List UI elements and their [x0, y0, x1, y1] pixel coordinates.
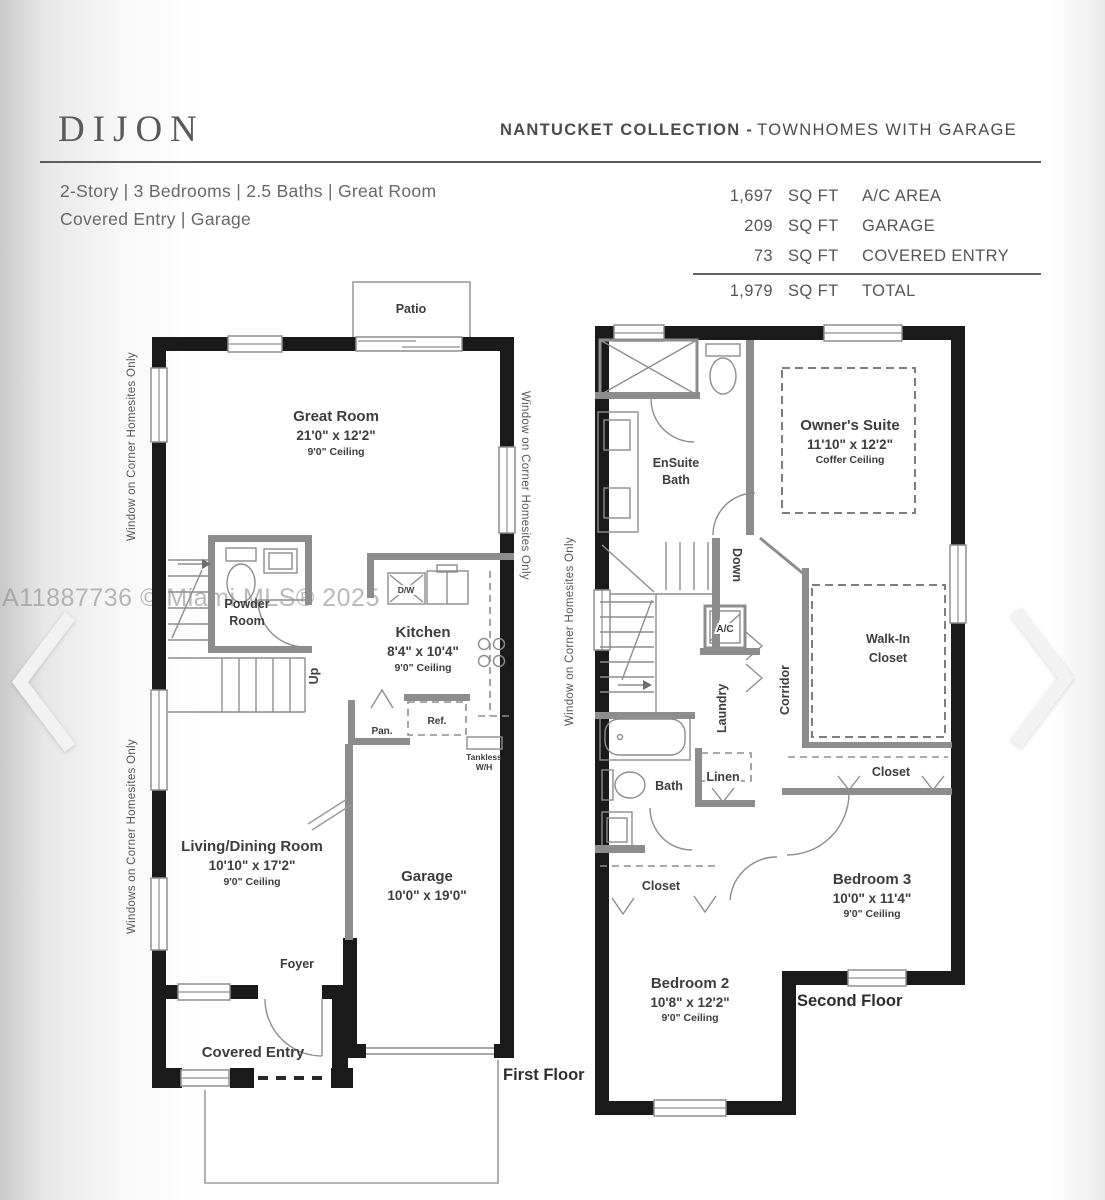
bedroom3-label: Bedroom 3: [833, 871, 911, 888]
great-room-dims: 21'0" x 12'2": [296, 428, 375, 443]
powder-room: Powder Room: [224, 548, 305, 647]
note-second-left: Window on Corner Homesites Only: [564, 523, 576, 741]
living-dining-ceiling: 9'0" Ceiling: [223, 876, 280, 888]
powder-room-label-1: Powder: [224, 597, 269, 611]
bedroom3-ceiling: 9'0" Ceiling: [843, 908, 900, 920]
foyer-covered-entry: Foyer Covered Entry: [202, 957, 322, 1061]
walk-in-closet: Walk-In Closet: [812, 585, 945, 737]
powder-room-label-2: Room: [229, 614, 264, 628]
bedroom-2: Bedroom 2 10'8" x 12'2" 9'0" Ceiling: [650, 975, 729, 1024]
tankless-wh-label-2: W/H: [476, 762, 493, 772]
hall-closet-label: Closet: [872, 765, 911, 779]
second-floor-plan: EnSuite Bath Owner's Suite 11'10" x 12'2…: [594, 325, 966, 1116]
down-label: Down: [730, 548, 744, 582]
bedroom2-ceiling: 9'0" Ceiling: [661, 1012, 718, 1024]
previous-photo-button[interactable]: [6, 610, 86, 760]
next-photo-button[interactable]: [1000, 606, 1080, 756]
bedroom2-label: Bedroom 2: [651, 975, 729, 992]
bedroom-3: Bedroom 3 10'0" x 11'4" 9'0" Ceiling: [833, 871, 912, 920]
up-label: Up: [307, 667, 321, 684]
patio: Patio: [353, 282, 470, 339]
note-first-right: Window on Corner Homesites Only: [519, 378, 531, 593]
walk-in-closet-label-2: Closet: [869, 651, 908, 665]
tankless-wh-label-1: Tankless: [466, 752, 502, 762]
owners-suite: Owner's Suite 11'10" x 12'2" Coffer Ceil…: [782, 368, 915, 513]
ac-closet: A/C: [705, 606, 745, 648]
staircase-up: Up: [168, 559, 321, 712]
laundry-label: Laundry: [715, 684, 729, 733]
first-floor-caption: First Floor: [503, 1066, 585, 1084]
covered-entry-label: Covered Entry: [202, 1044, 305, 1061]
note-first-left-bottom: Windows on Corner Homesites Only: [126, 724, 138, 949]
kitchen-label: Kitchen: [395, 624, 450, 641]
pantry-label: Pan.: [371, 726, 392, 737]
patio-label: Patio: [396, 302, 427, 316]
linen-label: Linen: [706, 770, 739, 784]
kitchen-ceiling: 9'0" Ceiling: [394, 662, 451, 674]
note-first-left-top: Window on Corner Homesites Only: [126, 333, 138, 561]
ensuite-bath: EnSuite Bath: [598, 340, 755, 535]
ensuite-bath-label-2: Bath: [662, 473, 690, 487]
great-room-label: Great Room: [293, 408, 379, 425]
living-dining-dims: 10'10" x 17'2": [209, 858, 296, 873]
ac-label: A/C: [716, 624, 733, 635]
living-dining-room: Living/Dining Room 10'10" x 17'2" 9'0" C…: [181, 799, 351, 888]
hall-closet: Closet: [788, 757, 948, 790]
garage: Garage 10'0" x 19'0": [387, 868, 466, 903]
bedroom2-dims: 10'8" x 12'2": [650, 995, 729, 1010]
living-dining-label: Living/Dining Room: [181, 838, 323, 855]
owners-suite-label: Owner's Suite: [800, 417, 899, 434]
floor-plan-canvas: Patio: [0, 0, 1105, 1200]
dishwasher-label: D/W: [398, 585, 416, 595]
owners-suite-ceiling: Coffer Ceiling: [816, 454, 885, 466]
kitchen-dims: 8'4" x 10'4": [387, 644, 459, 659]
chevron-left-icon: [6, 610, 86, 760]
corridor-label: Corridor: [778, 665, 792, 715]
walk-in-closet-label-1: Walk-In: [866, 632, 910, 646]
garage-label: Garage: [401, 868, 453, 885]
bedroom2-closet: Closet: [600, 866, 718, 914]
refrigerator-label: Ref.: [428, 716, 447, 727]
bedroom2-closet-label: Closet: [642, 879, 681, 893]
great-room: Great Room 21'0" x 12'2" 9'0" Ceiling: [293, 408, 379, 458]
owners-suite-dims: 11'10" x 12'2": [807, 437, 893, 452]
great-room-ceiling: 9'0" Ceiling: [307, 446, 364, 458]
second-floor-caption: Second Floor: [797, 992, 903, 1010]
bedroom3-dims: 10'0" x 11'4": [833, 891, 912, 906]
garage-dims: 10'0" x 19'0": [387, 888, 466, 903]
ensuite-bath-label-1: EnSuite: [653, 456, 700, 470]
listing-photo-floorplan: { "header": { "plan_name": "DIJON", "col…: [0, 0, 1105, 1200]
chevron-right-icon: [1000, 606, 1080, 756]
linen-closet: Linen: [701, 753, 751, 802]
foyer-label: Foyer: [280, 957, 314, 971]
bath-label: Bath: [655, 779, 683, 793]
second-floor-bath: Bath: [600, 714, 690, 848]
